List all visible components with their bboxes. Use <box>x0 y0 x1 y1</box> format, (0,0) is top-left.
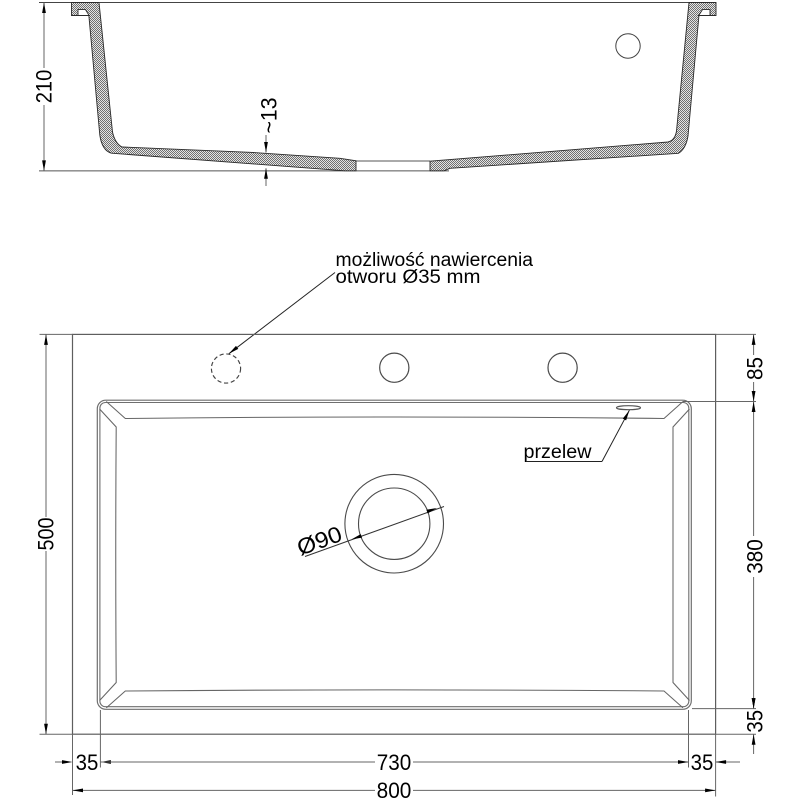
svg-text:85: 85 <box>743 357 768 380</box>
svg-text:Ø90: Ø90 <box>294 521 346 560</box>
svg-text:35: 35 <box>76 750 99 775</box>
svg-text:35: 35 <box>743 710 768 733</box>
svg-text:przelew: przelew <box>524 442 592 463</box>
svg-text:210: 210 <box>32 70 57 104</box>
svg-text:380: 380 <box>743 539 768 574</box>
svg-text:500: 500 <box>34 518 59 551</box>
svg-text:730: 730 <box>377 750 412 775</box>
svg-text:800: 800 <box>377 778 412 800</box>
svg-text:35: 35 <box>691 750 714 775</box>
svg-text:~13: ~13 <box>257 98 282 134</box>
svg-text:otworu Ø35 mm: otworu Ø35 mm <box>336 267 481 288</box>
